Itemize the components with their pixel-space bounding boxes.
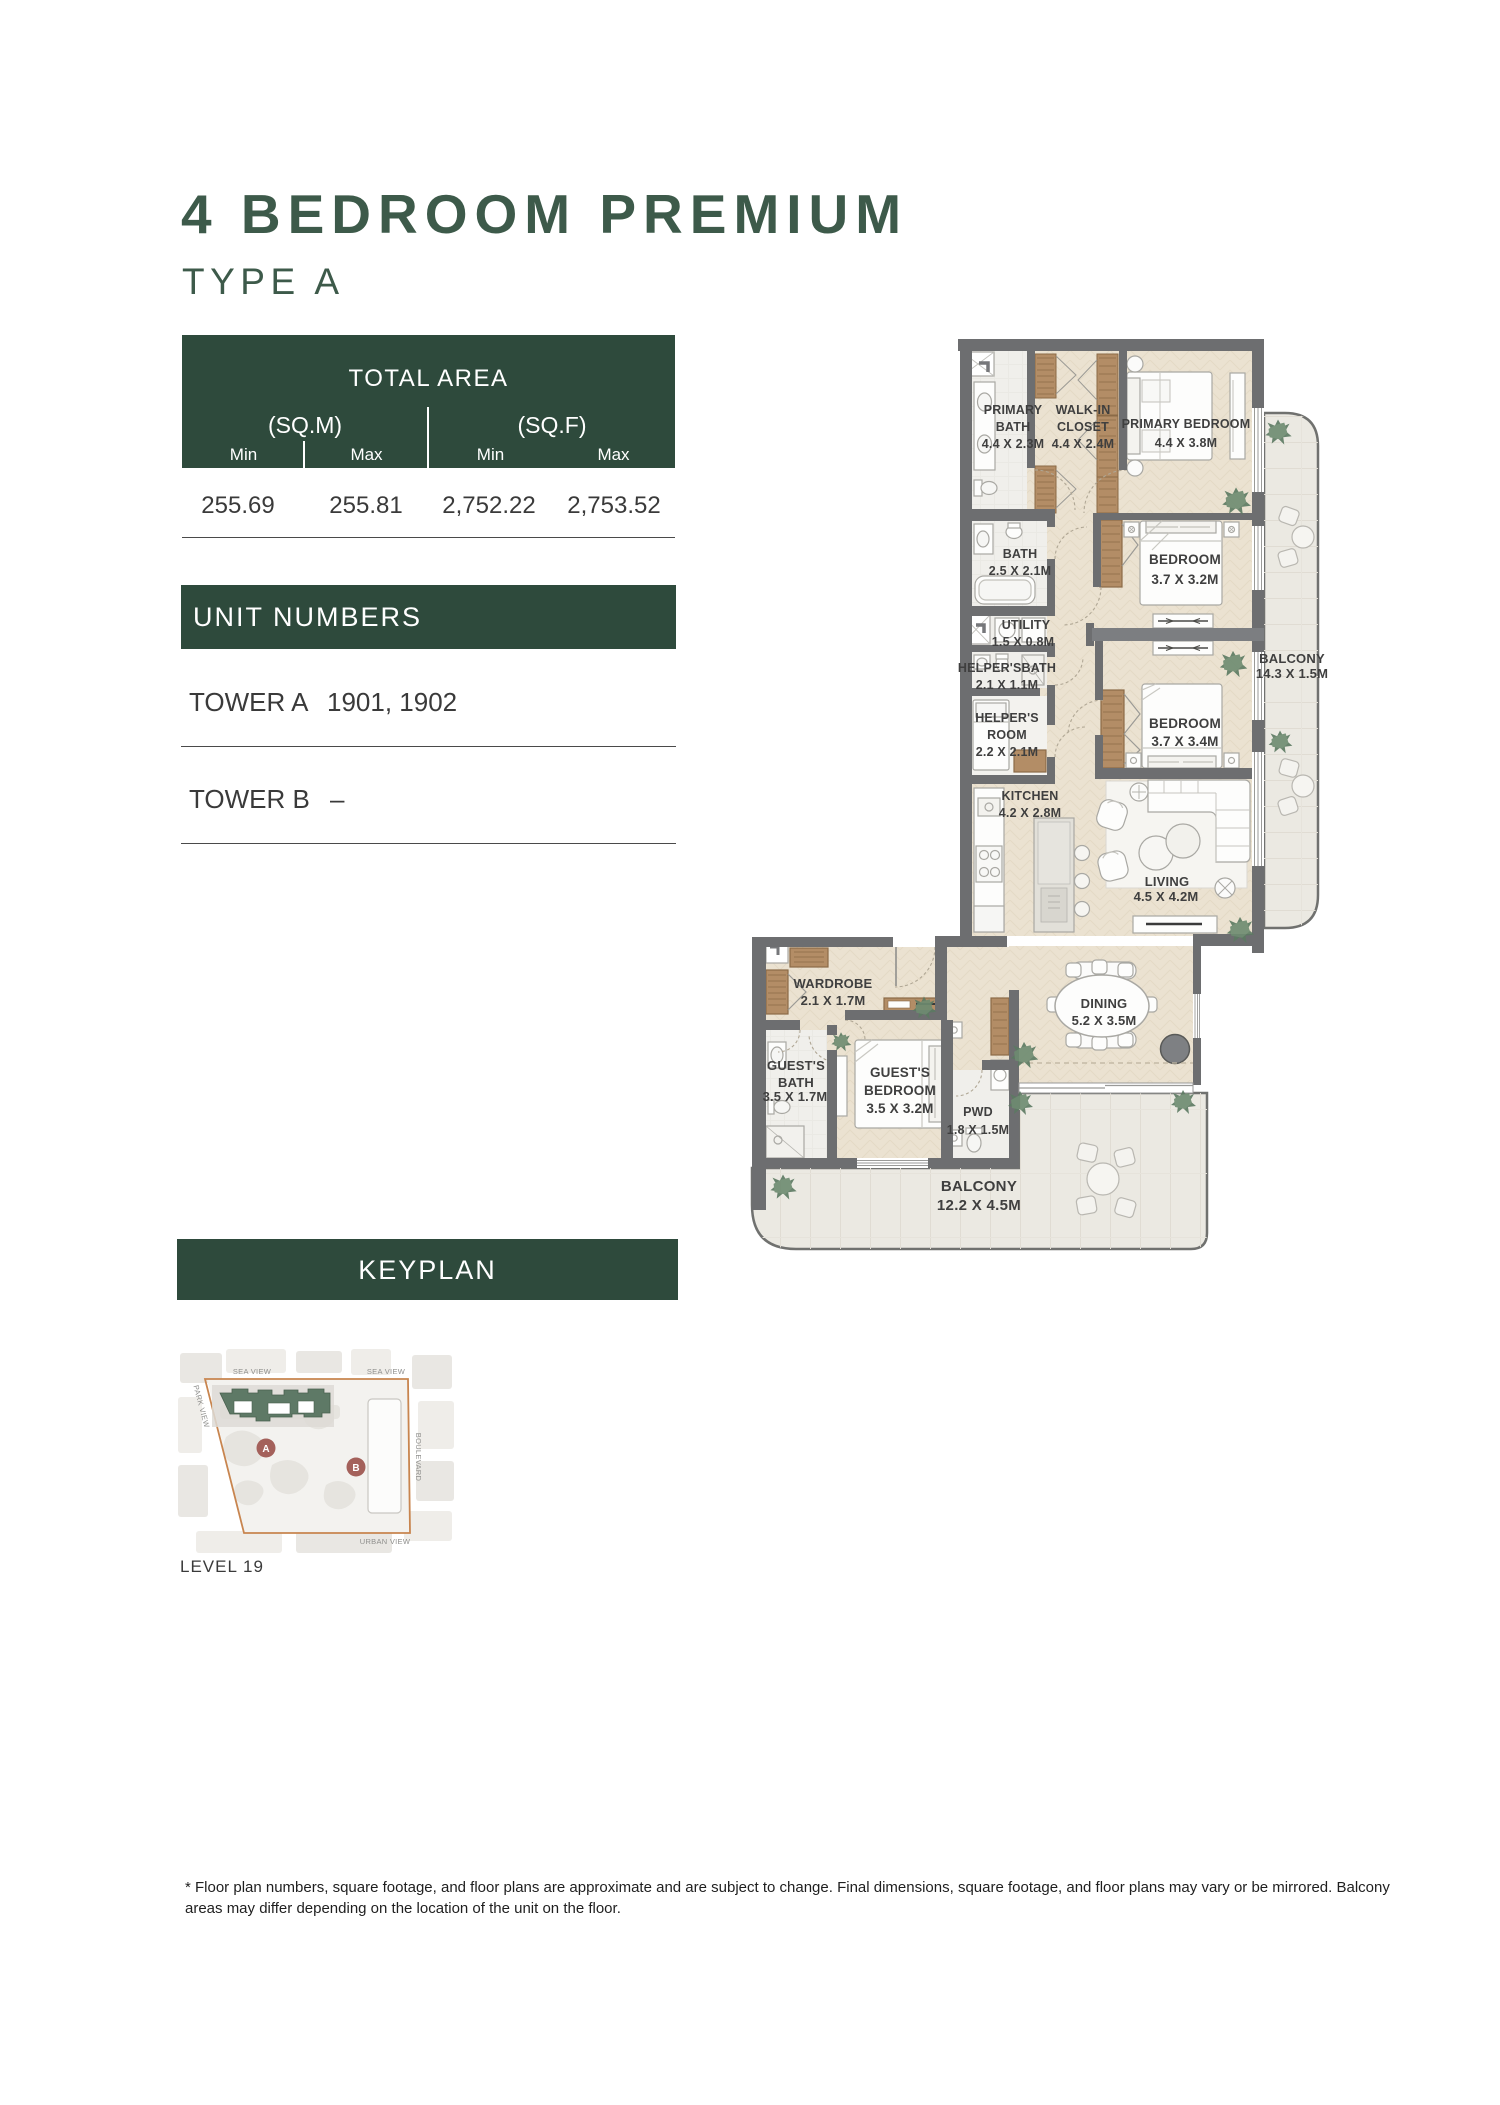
svg-text:3.5 X 3.2M: 3.5 X 3.2M	[866, 1101, 933, 1116]
svg-text:BEDROOM: BEDROOM	[864, 1083, 936, 1098]
svg-text:LIVING: LIVING	[1145, 874, 1190, 889]
svg-text:BALCONY: BALCONY	[941, 1178, 1017, 1195]
svg-text:ROOM: ROOM	[987, 728, 1027, 742]
svg-text:HELPER'S: HELPER'S	[975, 711, 1039, 725]
svg-text:BEDROOM: BEDROOM	[1149, 552, 1221, 567]
svg-text:3.7 X 3.2M: 3.7 X 3.2M	[1151, 572, 1218, 587]
svg-text:WALK-IN: WALK-IN	[1056, 403, 1111, 417]
svg-text:4.4 X 2.4M: 4.4 X 2.4M	[1052, 437, 1114, 451]
svg-text:4.4 X 2.3M: 4.4 X 2.3M	[982, 437, 1044, 451]
svg-text:14.3 X 1.5M: 14.3 X 1.5M	[1256, 666, 1328, 681]
svg-text:12.2 X 4.5M: 12.2 X 4.5M	[937, 1197, 1021, 1214]
svg-text:4.2 X 2.8M: 4.2 X 2.8M	[999, 806, 1061, 820]
svg-text:4.4 X 3.8M: 4.4 X 3.8M	[1155, 436, 1217, 450]
svg-text:2.2 X 2.1M: 2.2 X 2.1M	[976, 745, 1038, 759]
svg-text:KITCHEN: KITCHEN	[1002, 789, 1059, 803]
svg-text:GUEST'S: GUEST'S	[767, 1058, 825, 1073]
svg-text:3.7 X 3.4M: 3.7 X 3.4M	[1151, 734, 1218, 749]
svg-text:BATH: BATH	[778, 1075, 814, 1090]
svg-text:BALCONY: BALCONY	[1259, 651, 1325, 666]
svg-text:DINING: DINING	[1081, 996, 1128, 1011]
svg-text:UTILITY: UTILITY	[1002, 618, 1051, 632]
svg-text:CLOSET: CLOSET	[1057, 420, 1109, 434]
svg-text:1.5 X 0.8M: 1.5 X 0.8M	[992, 635, 1054, 649]
svg-text:BATH: BATH	[996, 420, 1031, 434]
svg-text:2.1 X 1.7M: 2.1 X 1.7M	[801, 993, 866, 1008]
svg-text:2.5 X 2.1M: 2.5 X 2.1M	[989, 564, 1051, 578]
svg-text:WARDROBE: WARDROBE	[794, 976, 873, 991]
svg-text:3.5 X 1.7M: 3.5 X 1.7M	[763, 1089, 828, 1104]
svg-text:4.5 X 4.2M: 4.5 X 4.2M	[1134, 889, 1199, 904]
svg-text:HELPER'SBATH: HELPER'SBATH	[958, 661, 1056, 675]
svg-text:PRIMARY BEDROOM: PRIMARY BEDROOM	[1122, 417, 1251, 431]
svg-text:PWD: PWD	[963, 1105, 993, 1119]
svg-text:1.8 X 1.5M: 1.8 X 1.5M	[947, 1123, 1009, 1137]
svg-text:PRIMARY: PRIMARY	[984, 403, 1043, 417]
svg-text:2.1 X 1.1M: 2.1 X 1.1M	[976, 678, 1038, 692]
svg-text:BATH: BATH	[1003, 547, 1038, 561]
svg-text:BEDROOM: BEDROOM	[1149, 716, 1221, 731]
svg-text:GUEST'S: GUEST'S	[870, 1065, 930, 1080]
svg-text:5.2 X 3.5M: 5.2 X 3.5M	[1072, 1013, 1137, 1028]
